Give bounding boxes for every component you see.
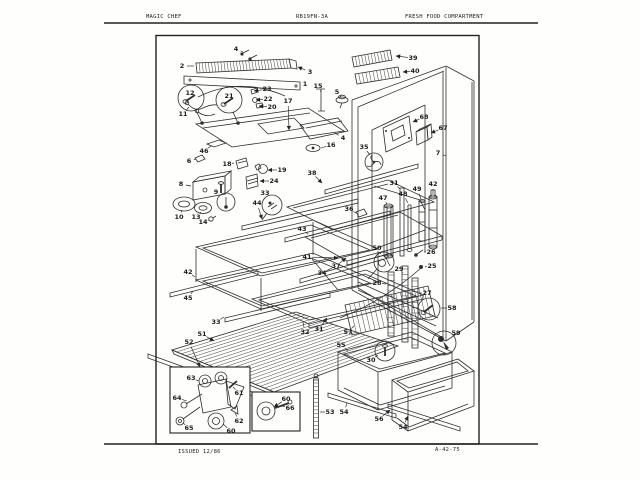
part-number-label: 31	[314, 326, 323, 333]
part-number-label: 26	[426, 249, 435, 256]
part-number-label: 33	[260, 190, 269, 197]
part-number-label: 54	[339, 409, 348, 416]
part-number-label: 57	[343, 329, 352, 336]
part-number-label: 55	[336, 342, 345, 349]
part-number-label: 66	[285, 405, 294, 412]
part-number-label: 16	[326, 142, 335, 149]
part-number-label: 31	[389, 180, 398, 187]
part-number-label: 61	[234, 390, 243, 397]
part-number-label: 34	[317, 270, 326, 277]
part-number-label: 41	[302, 254, 311, 261]
part-number-label: 59	[451, 330, 460, 337]
part-number-label: 32	[300, 329, 309, 336]
part-number-label: 3	[308, 69, 313, 76]
part-number-label: 27	[422, 290, 431, 297]
part-number-label: 68	[419, 114, 428, 121]
exploded-parts-diagram	[0, 0, 640, 480]
part-number-label: 2	[180, 63, 185, 70]
part-number-label: 8	[179, 181, 184, 188]
part-number-label: 1	[303, 81, 308, 88]
part-number-label: 51	[197, 331, 206, 338]
part-number-label: 21	[224, 93, 233, 100]
part-number-label: 38	[307, 170, 316, 177]
part-number-label: 50	[372, 245, 381, 252]
part-number-label: 29	[394, 266, 403, 273]
part-number-label: 10	[174, 214, 183, 221]
part-number-label: 7	[436, 150, 441, 157]
part-number-label: 62	[234, 418, 243, 425]
part-number-label: 63	[186, 375, 195, 382]
part-number-label: 5	[335, 89, 340, 96]
part-number-label: 56	[374, 416, 383, 423]
part-number-label: 37	[331, 263, 340, 270]
part-number-label: 36	[344, 206, 353, 213]
part-number-label: 39	[408, 55, 417, 62]
part-number-label: 23	[262, 86, 271, 93]
part-number-label: 44	[252, 200, 261, 207]
part-number-label: 47	[378, 195, 387, 202]
part-number-label: 20	[267, 104, 276, 111]
part-number-label: 65	[184, 425, 193, 432]
part-number-label: 53	[325, 409, 334, 416]
part-number-label: 60	[226, 428, 235, 435]
part-number-label: 22	[263, 96, 272, 103]
part-number-label: 40	[410, 68, 419, 75]
part-number-label: 33	[211, 319, 220, 326]
part-number-label: 64	[172, 395, 181, 402]
part-number-label: 46	[199, 148, 208, 155]
part-number-label: 52	[184, 339, 193, 346]
part-number-label: 60	[281, 396, 290, 403]
part-number-label: 49	[412, 186, 421, 193]
scanned-parts-catalog-page: MAGIC CHEF RB19FN-3A FRESH FOOD COMPARTM…	[0, 0, 640, 480]
part-number-label: 18	[222, 161, 231, 168]
part-number-label: 24	[269, 178, 278, 185]
part-number-label: 19	[277, 167, 286, 174]
part-number-label: 12	[185, 90, 194, 97]
part-number-label: 30	[366, 357, 375, 364]
part-number-label: 58	[447, 305, 456, 312]
part-number-label: 42	[428, 181, 437, 188]
part-number-label: 28	[372, 280, 381, 287]
part-number-label: 54	[398, 424, 407, 431]
part-number-label: 15	[313, 83, 322, 90]
part-number-label: 45	[183, 295, 192, 302]
part-number-label: 4	[341, 135, 346, 142]
part-number-label: 6	[187, 158, 192, 165]
part-number-label: 25	[427, 263, 436, 270]
part-number-label: 11	[178, 111, 187, 118]
part-number-label: 17	[283, 98, 292, 105]
part-number-label: 67	[438, 125, 447, 132]
part-number-label: 43	[297, 226, 306, 233]
part-number-label: 9	[214, 189, 219, 196]
part-number-label: 42	[183, 269, 192, 276]
part-number-label: 35	[359, 144, 368, 151]
part-number-label: 14	[198, 219, 207, 226]
part-number-label: 4	[234, 46, 239, 53]
part-number-label: 48	[398, 191, 407, 198]
